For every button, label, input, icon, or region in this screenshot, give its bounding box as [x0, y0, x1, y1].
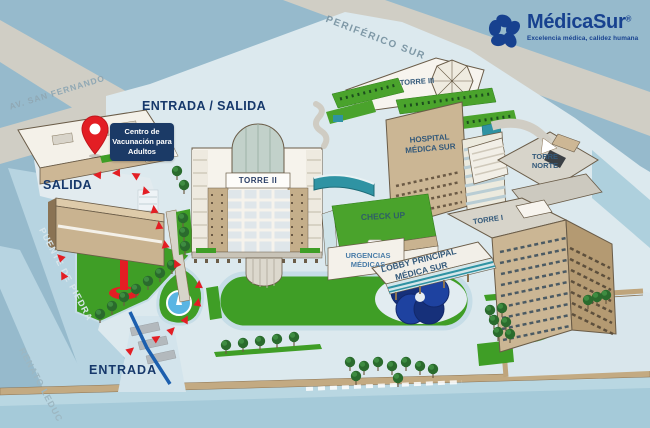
location-pin-icon: [79, 114, 111, 165]
label-entrada: ENTRADA: [89, 363, 157, 377]
vaccination-center-callout: Centro de Vacunación para Adultos: [110, 123, 174, 161]
route-arrow: [193, 297, 202, 306]
entrance-canopy: [246, 258, 282, 286]
campus-map: PERIFÉRICO SUR AV. SAN FERNANDO PUENTE D…: [0, 0, 650, 428]
logo-registered-mark: ®: [625, 15, 631, 24]
label-salida: SALIDA: [43, 178, 92, 192]
route-arrow: [93, 171, 102, 180]
label-entrada-salida: ENTRADA / SALIDA: [142, 99, 266, 113]
logo-tagline: Excelencia médica, calidez humana: [527, 35, 638, 42]
route-arrow: [160, 239, 169, 248]
logo-name: MédicaSur: [527, 11, 625, 33]
route-arrow: [150, 205, 159, 214]
logo-flower-icon: [487, 12, 521, 52]
logo: MédicaSur® Excelencia médica, calidez hu…: [487, 12, 638, 52]
route-arrow: [155, 221, 164, 230]
red-sculpture: [120, 256, 128, 290]
label-torre-ii: TORRE II: [229, 176, 287, 186]
label-torre-norte: TORRE NORTE: [526, 152, 564, 171]
route-arrow: [112, 169, 120, 177]
route-arrow: [195, 280, 203, 288]
